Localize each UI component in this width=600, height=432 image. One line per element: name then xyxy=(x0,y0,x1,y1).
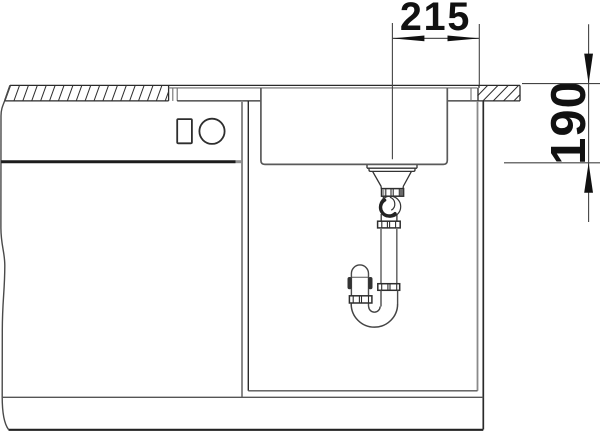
svg-text:190: 190 xyxy=(542,80,596,165)
svg-text:215: 215 xyxy=(400,0,471,39)
